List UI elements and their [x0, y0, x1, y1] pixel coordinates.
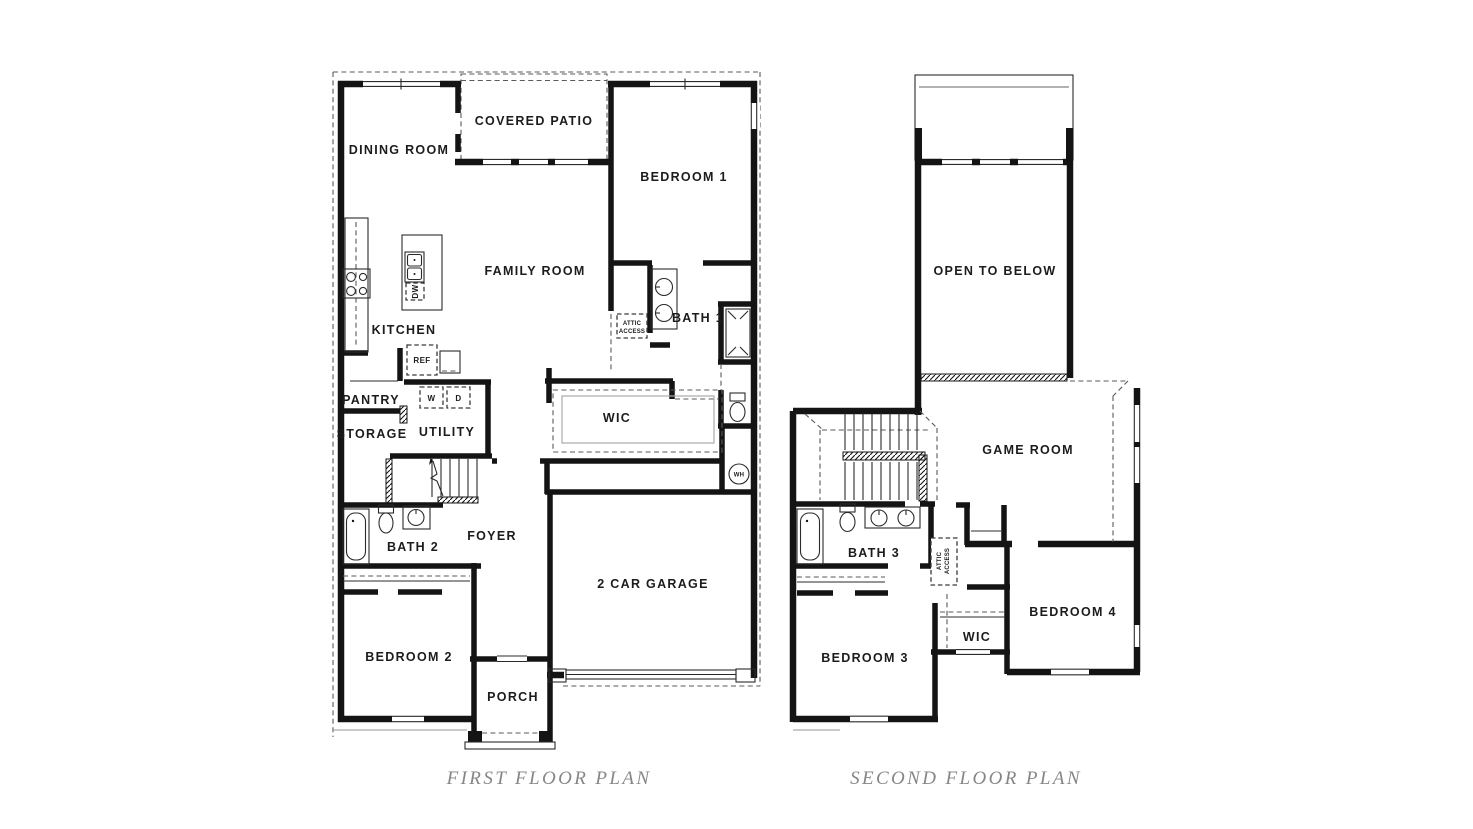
- room-label-pantry: PANTRY: [342, 393, 400, 407]
- washer-label: W: [428, 394, 436, 403]
- attic-access-label-1: ATTIC: [623, 321, 642, 327]
- first-floor-caption: FIRST FLOOR PLAN: [446, 768, 652, 789]
- hatched-wall-storage: [400, 406, 407, 423]
- room-label-utility: UTILITY: [419, 425, 475, 439]
- window-bedroom4: [1051, 666, 1089, 678]
- room-label-storage: STORAGE: [337, 427, 408, 441]
- room-label-covered-patio: COVERED PATIO: [475, 114, 594, 128]
- room-label-porch: PORCH: [487, 690, 539, 704]
- bathtub-icon-sf: [797, 509, 823, 564]
- first-floor-plan: DW REF W D: [333, 72, 760, 749]
- window-dining: [363, 78, 440, 90]
- room-label-bedroom1: BEDROOM 1: [640, 170, 727, 184]
- room-label-foyer: FOYER: [467, 529, 517, 543]
- toilet-icon-bath1: [730, 393, 745, 422]
- garage-door: [549, 669, 755, 682]
- room-label-open-to-below: OPEN TO BELOW: [934, 264, 1057, 278]
- windows-family-patio: [483, 156, 588, 168]
- room-label-dining: DINING ROOM: [349, 143, 449, 157]
- room-label-family: FAMILY ROOM: [484, 264, 585, 278]
- second-floor-plan: ATTIC ACCESS OPEN TO BELOW GAME ROOM BAT…: [793, 75, 1143, 730]
- water-heater-label: WH: [734, 473, 744, 479]
- attic-access-box-sf: ATTIC ACCESS: [931, 538, 957, 585]
- attic-access-box-ff: ATTIC ACCESS: [617, 314, 647, 338]
- floor-plan-drawing: DW REF W D: [0, 0, 1473, 829]
- window-bedroom2: [392, 713, 424, 725]
- room-label-bath3: BATH 3: [848, 546, 900, 560]
- railing-open-to-below: [921, 374, 1067, 381]
- stairs-icon: [429, 458, 477, 497]
- windows-open-to-below: [942, 157, 1063, 168]
- room-label-bath1: BATH 1: [672, 311, 724, 325]
- hatched-wall-stairs-left: [386, 459, 392, 503]
- window-bedroom3: [850, 713, 888, 725]
- closet-shelf-bedroom2: [343, 576, 470, 581]
- kitchen-counter: [345, 218, 368, 352]
- water-heater-icon: WH: [729, 464, 749, 484]
- room-label-bedroom2: BEDROOM 2: [365, 650, 452, 664]
- attic-access-label-2: ACCESS: [619, 329, 645, 335]
- room-label-bedroom4: BEDROOM 4: [1029, 605, 1116, 619]
- floor-plan-canvas: DW REF W D: [0, 0, 1473, 829]
- attic-access-sf-label-2: ACCESS: [945, 548, 951, 574]
- window-bedroom1: [650, 78, 720, 90]
- interior-walls-sf: [793, 504, 1010, 722]
- patio-roof-bay: [915, 75, 1073, 162]
- sink-icon: [403, 506, 430, 529]
- hatched-wall-stairs-bottom: [438, 497, 478, 503]
- refrigerator-box: REF: [407, 345, 437, 375]
- room-label-wic-sf: WIC: [963, 630, 991, 644]
- dryer-label: D: [455, 394, 461, 403]
- dishwasher-box: DW: [406, 283, 424, 300]
- attic-access-sf-label-1: ATTIC: [937, 551, 943, 570]
- counter-stub: [440, 351, 460, 373]
- toilet-icon-sf: [840, 504, 855, 532]
- room-label-bedroom3: BEDROOM 3: [821, 651, 908, 665]
- room-label-game-room: GAME ROOM: [982, 443, 1074, 457]
- toilet-icon: [379, 505, 394, 533]
- stairs-icon-sf: [843, 413, 927, 501]
- window-bedroom1-side: [748, 103, 760, 129]
- dryer-box: D: [447, 387, 470, 408]
- bathtub-icon: [343, 509, 369, 564]
- room-label-bath2: BATH 2: [387, 540, 439, 554]
- closet-shelf-bedroom3: [797, 577, 885, 582]
- room-label-kitchen: KITCHEN: [372, 323, 437, 337]
- washer-box: W: [420, 387, 443, 408]
- room-label-garage: 2 CAR GARAGE: [597, 577, 708, 591]
- room-label-wic-ff: WIC: [603, 411, 631, 425]
- shower-icon: [726, 309, 750, 357]
- dishwasher-label: DW: [411, 284, 420, 298]
- refrigerator-label: REF: [413, 356, 430, 365]
- second-floor-caption: SECOND FLOOR PLAN: [850, 768, 1082, 789]
- window-wic-sf: [956, 647, 990, 657]
- vanity-bath3: [865, 507, 920, 528]
